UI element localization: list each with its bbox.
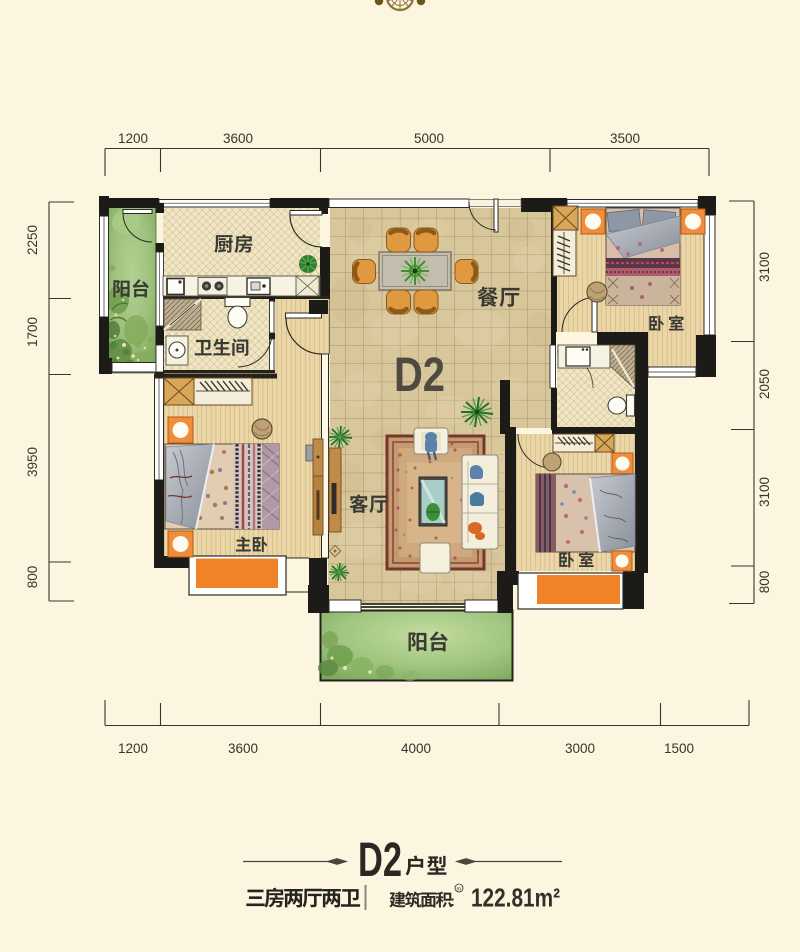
svg-text:3100: 3100 xyxy=(757,252,772,282)
svg-text:D2: D2 xyxy=(394,349,445,402)
svg-text:3500: 3500 xyxy=(610,131,640,146)
svg-text:1200: 1200 xyxy=(118,741,148,756)
svg-text:3100: 3100 xyxy=(757,477,772,507)
svg-text:2250: 2250 xyxy=(25,225,40,255)
svg-text:1500: 1500 xyxy=(664,741,694,756)
svg-text:3600: 3600 xyxy=(223,131,253,146)
svg-text:800: 800 xyxy=(25,566,40,589)
svg-text:3000: 3000 xyxy=(565,741,595,756)
svg-text:3600: 3600 xyxy=(228,741,258,756)
svg-text:m: m xyxy=(457,887,462,893)
svg-text:2050: 2050 xyxy=(757,369,772,399)
svg-text:1700: 1700 xyxy=(25,317,40,347)
svg-text:4000: 4000 xyxy=(401,741,431,756)
svg-text:122.81m²: 122.81m² xyxy=(471,883,560,913)
svg-text::: : xyxy=(450,893,455,910)
svg-text:5000: 5000 xyxy=(414,131,444,146)
svg-text:D2: D2 xyxy=(358,834,402,887)
svg-text:800: 800 xyxy=(757,571,772,594)
svg-text:1200: 1200 xyxy=(118,131,148,146)
svg-text:3950: 3950 xyxy=(25,447,40,477)
